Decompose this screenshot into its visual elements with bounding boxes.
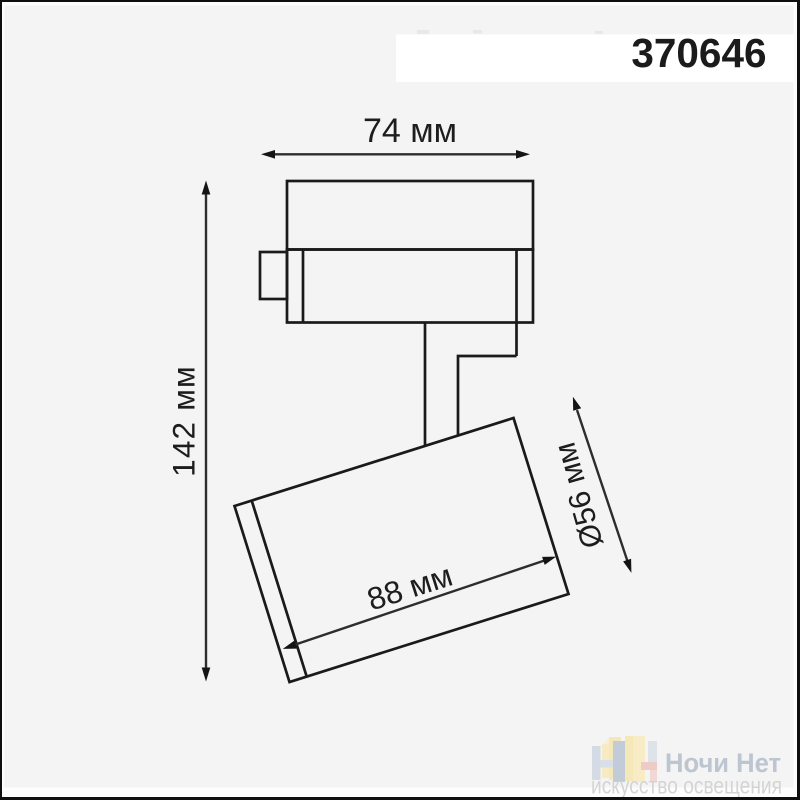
svg-text:74 мм: 74 мм [363, 112, 457, 150]
svg-text:искусство освещения: искусство освещения [591, 773, 782, 799]
svg-text:142 мм: 142 мм [166, 365, 202, 477]
svg-text:370646: 370646 [631, 30, 766, 76]
